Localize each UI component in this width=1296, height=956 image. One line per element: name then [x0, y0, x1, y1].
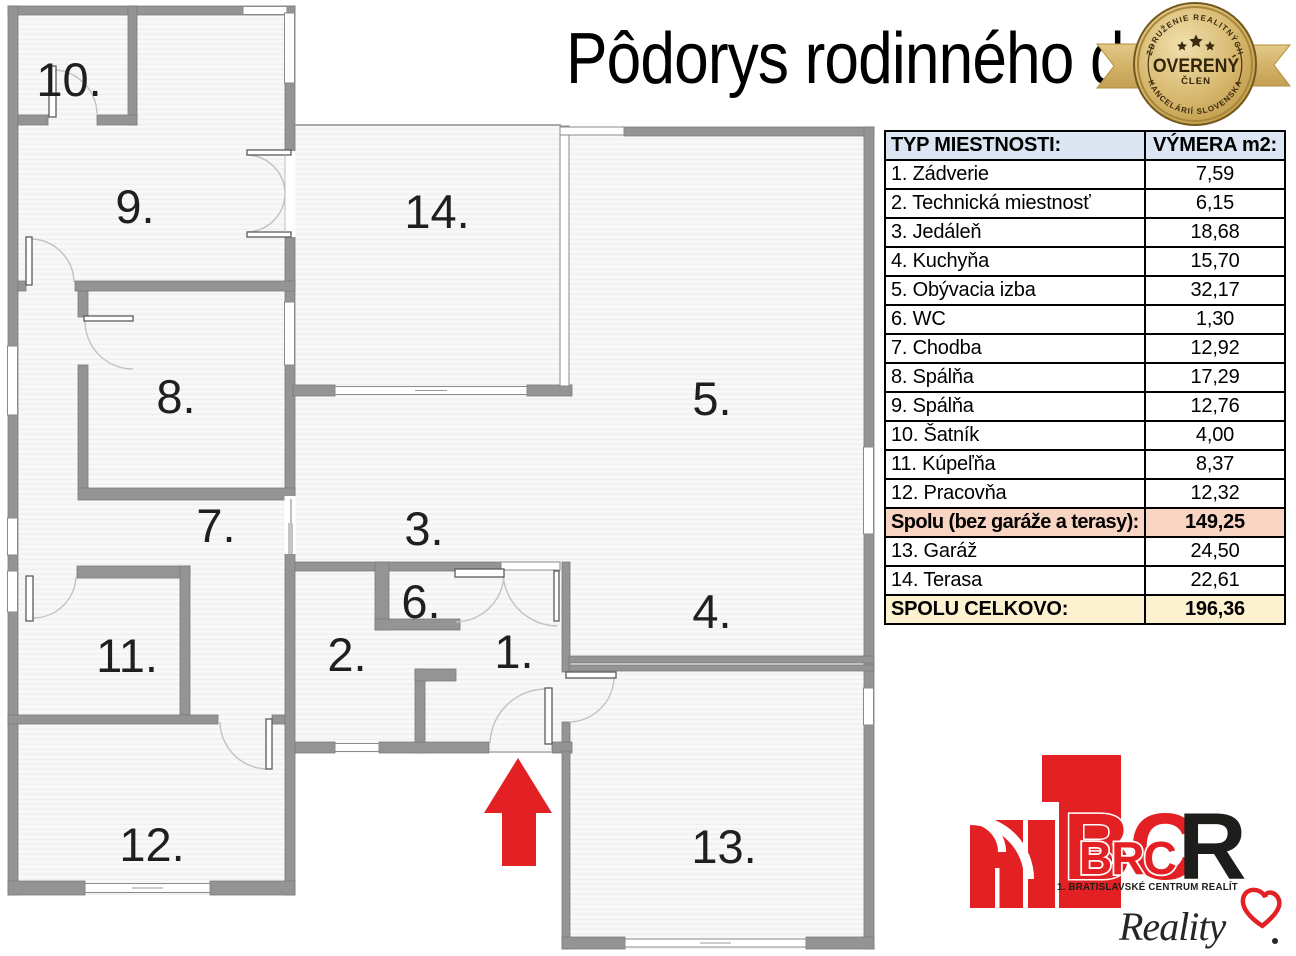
svg-text:8.: 8.	[156, 370, 195, 423]
svg-text:13.: 13.	[691, 820, 756, 873]
svg-text:7.: 7.	[196, 499, 235, 552]
svg-text:9.: 9.	[115, 180, 154, 233]
svg-text:4.: 4.	[692, 585, 731, 638]
svg-text:1.: 1.	[494, 625, 533, 678]
svg-text:10.: 10.	[36, 53, 101, 106]
svg-text:BRC: BRC	[1079, 832, 1176, 884]
svg-text:Reality: Reality	[1118, 904, 1227, 949]
svg-text:6.: 6.	[401, 575, 440, 628]
svg-text:3.: 3.	[404, 502, 443, 555]
svg-text:12.: 12.	[119, 818, 184, 871]
svg-text:14.: 14.	[404, 185, 469, 238]
svg-text:1. BRATISLAVSKÉ CENTRUM REALÍT: 1. BRATISLAVSKÉ CENTRUM REALÍT	[1057, 882, 1238, 893]
svg-text:OVERENÝ: OVERENÝ	[1153, 54, 1239, 76]
svg-text:11.: 11.	[96, 629, 158, 682]
svg-text:ČLEN: ČLEN	[1181, 75, 1211, 87]
svg-text:2.: 2.	[327, 628, 366, 681]
svg-text:5.: 5.	[692, 372, 731, 425]
